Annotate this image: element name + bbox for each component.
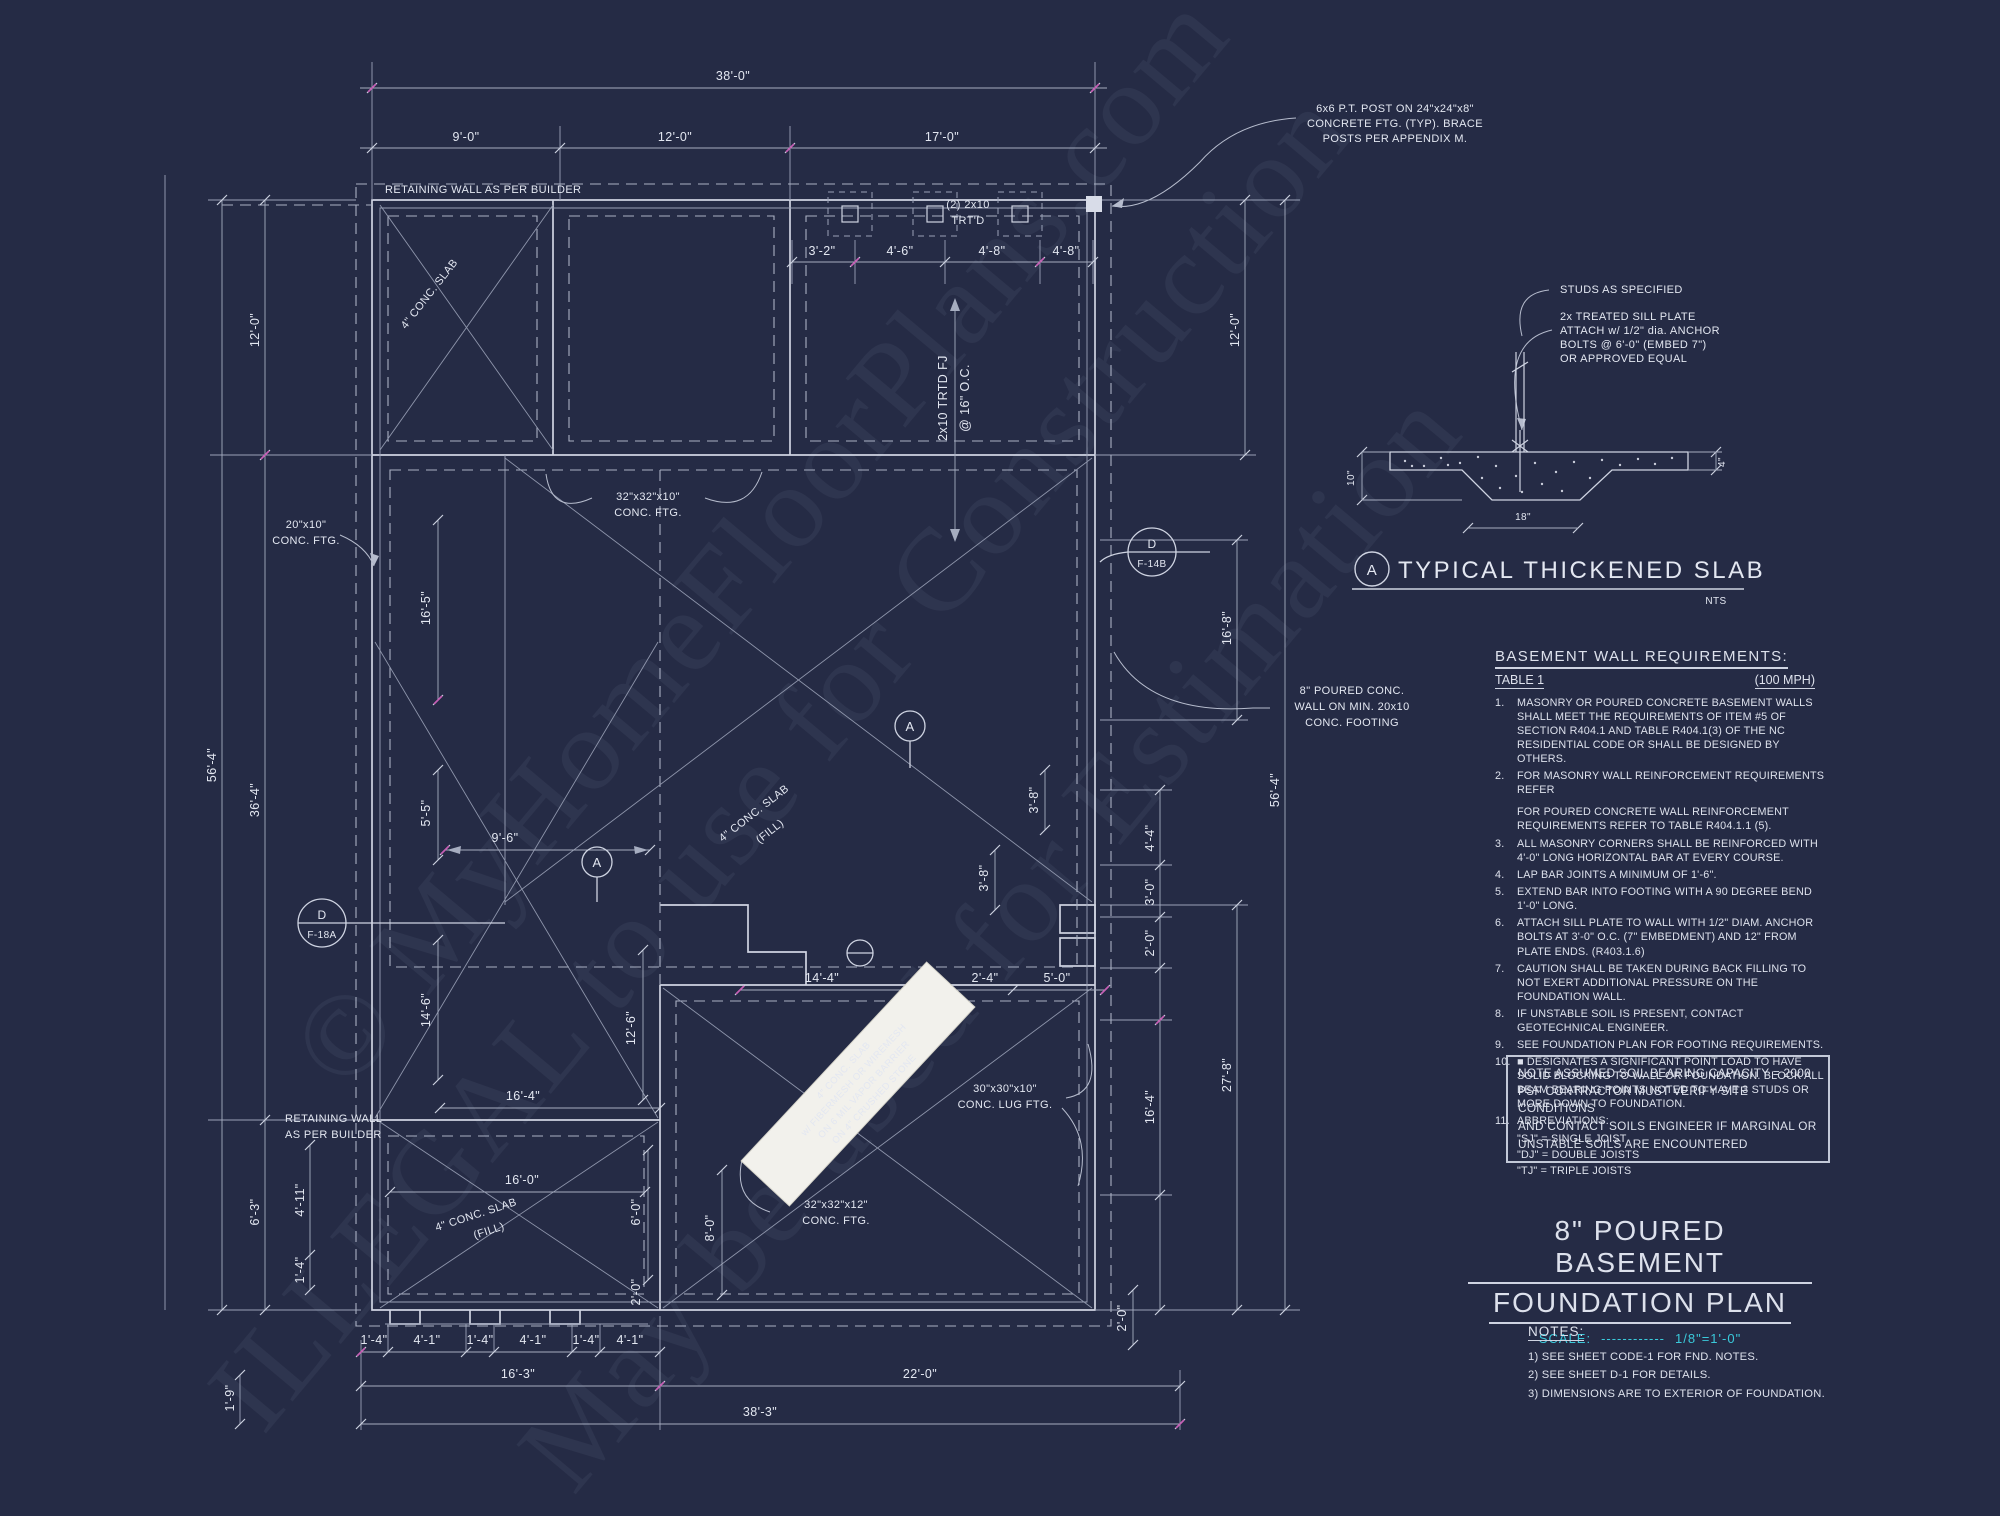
dim-label: 56'-4"	[1268, 773, 1282, 807]
dim-label: 38'-0"	[716, 69, 750, 83]
slab-label: (FILL)	[472, 1221, 506, 1242]
soil-bearing-note-box: NOTE ASSUMED SOIL BEARING CAPACITY = 200…	[1506, 1055, 1830, 1163]
item-number: 7.	[1495, 962, 1512, 1004]
leader-lines	[340, 118, 1552, 1212]
item-number: 1.	[1495, 696, 1512, 766]
dim-label: 3'-2"	[809, 244, 836, 258]
dimension-lines	[222, 88, 1285, 1424]
dim-label: 12'-0"	[658, 130, 692, 144]
dim-label: 5'-5"	[419, 800, 433, 827]
dim-label: 8'-0"	[703, 1215, 717, 1242]
note-item: 3) DIMENSIONS ARE TO EXTERIOR OF FOUNDAT…	[1528, 1385, 1868, 1403]
item-text: ALL MASONRY CORNERS SHALL BE REINFORCED …	[1517, 837, 1827, 865]
slab-label: (FILL)	[754, 817, 786, 846]
joist-note: @ 16" O.C.	[958, 364, 972, 432]
item-number: 5.	[1495, 885, 1512, 913]
footing-label: CONC. FTG.	[272, 535, 340, 547]
dim-label: 14'-6"	[419, 993, 433, 1027]
requirements-subheading: TABLE 1 (100 MPH)	[1495, 673, 1815, 689]
footing-label: CONC. FTG.	[614, 507, 682, 519]
sheet-title-line2: FOUNDATION PLAN	[1489, 1287, 1791, 1324]
callout-bubbles	[298, 528, 1210, 966]
dim-label: 9'-6"	[492, 831, 519, 845]
callout-labels: D F-14B D F-18A A A	[307, 537, 1166, 941]
dim-label: 2'-4"	[972, 971, 999, 985]
studs-note: STUDS AS SPECIFIED	[1560, 284, 1683, 296]
dim-label: 6'-0"	[629, 1199, 643, 1226]
item-text: LAP BAR JOINTS A MINIMUM OF 1'-6".	[1517, 868, 1827, 882]
dim-label: 1'-4"	[573, 1333, 600, 1347]
callout-letter: D	[317, 908, 326, 922]
dim-label: 12'-0"	[1228, 313, 1242, 347]
magenta-ticks	[261, 84, 1184, 1428]
dim-label: 14'-4"	[805, 971, 839, 985]
item-text: MASONRY OR POURED CONCRETE BASEMENT WALL…	[1517, 696, 1827, 766]
concrete-speckle	[1404, 456, 1673, 493]
dim-label: 16'-4"	[1143, 1090, 1157, 1124]
dim-label: 16'-0"	[505, 1173, 539, 1187]
post-note: 6x6 P.T. POST ON 24"x24"x8"	[1316, 103, 1474, 115]
detail-bubble-letter: A	[1367, 562, 1377, 579]
footing-label: 32"x32"x12"	[804, 1199, 868, 1211]
footing-label: 32"x32"x10"	[616, 491, 680, 503]
item-2-continued: FOR POURED CONCRETE WALL REINFORCEMENT R…	[1517, 805, 1827, 833]
soil-note-line: UNSTABLE SOILS ARE ENCOUNTERED	[1518, 1136, 1818, 1154]
item-number: 2.	[1495, 769, 1512, 797]
dim-label: 9'-0"	[453, 130, 480, 144]
item-text: IF UNSTABLE SOIL IS PRESENT, CONTACT GEO…	[1517, 1007, 1827, 1035]
sill-plate-note: OR APPROVED EQUAL	[1560, 353, 1687, 365]
list-item: 2.FOR MASONRY WALL REINFORCEMENT REQUIRE…	[1495, 769, 1827, 797]
table-label: TABLE 1	[1495, 673, 1544, 689]
item-number: 6.	[1495, 916, 1512, 958]
blueprint-sheet: © MyHomeFloorPlans.com ILLEGAL to use fo…	[0, 0, 2000, 1500]
dim-label: 16'-3"	[501, 1367, 535, 1381]
item-text: EXTEND BAR INTO FOOTING WITH A 90 DEGREE…	[1517, 885, 1827, 913]
plan-footing-dashed	[222, 184, 1111, 1326]
dim-label: 2'-0"	[1115, 1305, 1129, 1332]
dim-label: 4'-8"	[1053, 244, 1080, 258]
footing-label: 20"x10"	[286, 519, 327, 531]
item-text: CAUTION SHALL BE TAKEN DURING BACK FILLI…	[1517, 962, 1827, 1004]
note-item: 1) SEE SHEET CODE-1 FOR FND. NOTES.	[1528, 1348, 1868, 1366]
slab-spec-sticker: 4" CONC. SLAB w/ FIBERMESH OR WIREMESH O…	[741, 962, 975, 1206]
sheet-notes: NOTES: 1) SEE SHEET CODE-1 FOR FND. NOTE…	[1528, 1323, 1868, 1403]
sill-plate-note: ATTACH w/ 1/2" dia. ANCHOR	[1560, 325, 1720, 337]
sill-plate-note: BOLTS @ 6'-0" (EMBED 7")	[1560, 339, 1707, 351]
dim-label: 12'-6"	[624, 1011, 638, 1045]
thickened-slab-detail: 10" 4" 18" STUDS AS SPECIFIED 2x TREATED…	[1346, 284, 1765, 607]
lug-footing-label: 30"x30"x10"	[973, 1083, 1037, 1095]
slab-x-bracing	[375, 205, 1092, 1308]
dim-label: 4'-6"	[887, 244, 914, 258]
joist-note: 2x10 TRTD FJ	[936, 355, 950, 441]
dim-label: 6'-3"	[248, 1199, 262, 1226]
dim-label: 4'-1"	[617, 1333, 644, 1347]
retaining-wall-note-bottom: RETAINING WALL	[285, 1113, 382, 1125]
detail-title: TYPICAL THICKENED SLAB	[1398, 557, 1765, 584]
dim-label: 4'-8"	[979, 244, 1006, 258]
trtd-note: (2) 2x10	[946, 199, 990, 211]
list-item: 7.CAUTION SHALL BE TAKEN DURING BACK FIL…	[1495, 962, 1827, 1004]
dim-label: 3'-0"	[1143, 879, 1157, 906]
dim-label: 4'-11"	[293, 1183, 307, 1216]
abbreviation: "TJ" = TRIPLE JOISTS	[1517, 1163, 1827, 1179]
dim-label: 3'-8"	[977, 865, 991, 892]
note-item: 2) SEE SHEET D-1 FOR DETAILS.	[1528, 1366, 1868, 1384]
dim-label: 22'-0"	[903, 1367, 937, 1381]
item-number: 3.	[1495, 837, 1512, 865]
detail-nts: NTS	[1705, 596, 1726, 607]
sill-plate-note: 2x TREATED SILL PLATE	[1560, 311, 1696, 323]
dim-label: 12'-0"	[248, 313, 262, 347]
item-text: ATTACH SILL PLATE TO WALL WITH 1/2" DIAM…	[1517, 916, 1827, 958]
dimension-labels-vertical: 56'-4" 12'-0" 36'-4" 6'-3" 4'-11" 1'-4" …	[205, 313, 1282, 1412]
detail-dim: 18"	[1515, 512, 1531, 523]
dim-label: 2'-0"	[629, 1279, 643, 1306]
slab-section-outline	[1390, 452, 1688, 500]
dim-label: 1'-4"	[293, 1257, 307, 1284]
section-marker: A	[592, 855, 601, 870]
slab-label: 4" CONC. SLAB	[717, 783, 791, 845]
list-item: 3.ALL MASONRY CORNERS SHALL BE REINFORCE…	[1495, 837, 1827, 865]
trtd-note: TRT'D	[951, 215, 984, 227]
detail-dim: 10"	[1346, 470, 1357, 486]
dim-label: 1'-4"	[361, 1333, 388, 1347]
dim-label: 3'-8"	[1027, 787, 1041, 814]
plan-walls	[372, 200, 1095, 1324]
dim-label: 4'-1"	[414, 1333, 441, 1347]
wall-note: 8" POURED CONC.	[1300, 685, 1405, 697]
lug-footing-label: CONC. LUG FTG.	[958, 1099, 1053, 1111]
item-number: 4.	[1495, 868, 1512, 882]
detail-dim-lines	[1362, 452, 1722, 528]
item-number: 8.	[1495, 1007, 1512, 1035]
item-text: FOR MASONRY WALL REINFORCEMENT REQUIREME…	[1517, 769, 1827, 797]
wall-note: WALL ON MIN. 20x10	[1294, 701, 1409, 713]
requirements-heading: BASEMENT WALL REQUIREMENTS:	[1495, 648, 1788, 669]
slab-label: 4" CONC. SLAB	[399, 257, 461, 331]
soil-note-line: NOTE ASSUMED SOIL BEARING CAPACITY = 200…	[1518, 1065, 1818, 1083]
list-item: 9.SEE FOUNDATION PLAN FOR FOOTING REQUIR…	[1495, 1038, 1827, 1052]
dim-label: 56'-4"	[205, 748, 219, 782]
detail-dim: 4"	[1717, 457, 1728, 467]
retaining-wall-note-bottom: AS PER BUILDER	[285, 1129, 382, 1141]
footing-label: CONC. FTG.	[802, 1215, 870, 1227]
post-note: CONCRETE FTG. (TYP). BRACE	[1307, 118, 1483, 130]
callout-ref: F-18A	[307, 930, 336, 941]
post-note: POSTS PER APPENDIX M.	[1323, 133, 1468, 145]
list-item: 8.IF UNSTABLE SOIL IS PRESENT, CONTACT G…	[1495, 1007, 1827, 1035]
list-item: 5.EXTEND BAR INTO FOOTING WITH A 90 DEGR…	[1495, 885, 1827, 913]
soil-note-line: AND CONTACT SOILS ENGINEER IF MARGINAL O…	[1518, 1118, 1818, 1136]
item-number: 9.	[1495, 1038, 1512, 1052]
list-item: 6.ATTACH SILL PLATE TO WALL WITH 1/2" DI…	[1495, 916, 1827, 958]
dim-label: 1'-4"	[467, 1333, 494, 1347]
soil-note-line: PSF CONTRACTOR MUST VERIFY SITE CONDITIO…	[1518, 1083, 1818, 1118]
list-item: 4.LAP BAR JOINTS A MINIMUM OF 1'-6".	[1495, 868, 1827, 882]
fj-arrowheads	[447, 298, 960, 854]
dim-label: 36'-4"	[248, 783, 262, 817]
plan-inner-wall-lines	[165, 62, 1300, 1430]
callout-letter: D	[1147, 537, 1156, 551]
dim-label: 27'-8"	[1220, 1058, 1234, 1092]
dim-label: 38'-3"	[743, 1405, 777, 1419]
corner-post	[1086, 196, 1102, 212]
dim-label: 5'-0"	[1044, 971, 1071, 985]
retaining-wall-note-top: RETAINING WALL AS PER BUILDER	[385, 184, 581, 196]
notes-heading: NOTES:	[1528, 1324, 1584, 1341]
dim-label: 17'-0"	[925, 130, 959, 144]
list-item: 1.MASONRY OR POURED CONCRETE BASEMENT WA…	[1495, 696, 1827, 766]
wall-note: CONC. FOOTING	[1305, 717, 1399, 729]
callout-ref: F-14B	[1137, 559, 1166, 570]
dim-label: 2'-0"	[1143, 930, 1157, 957]
section-marker: A	[905, 719, 914, 734]
dim-label: 4'-4"	[1143, 825, 1157, 852]
dim-label: 1'-9"	[223, 1385, 237, 1412]
mph-label: (100 MPH)	[1755, 673, 1815, 689]
item-text: SEE FOUNDATION PLAN FOR FOOTING REQUIREM…	[1517, 1038, 1827, 1052]
dim-label: 16'-4"	[506, 1089, 540, 1103]
dim-label: 16'-5"	[419, 591, 433, 625]
sheet-title-line1: 8" POURED BASEMENT	[1468, 1215, 1812, 1284]
dim-label: 16'-8"	[1220, 611, 1234, 645]
dim-label: 4'-1"	[520, 1333, 547, 1347]
